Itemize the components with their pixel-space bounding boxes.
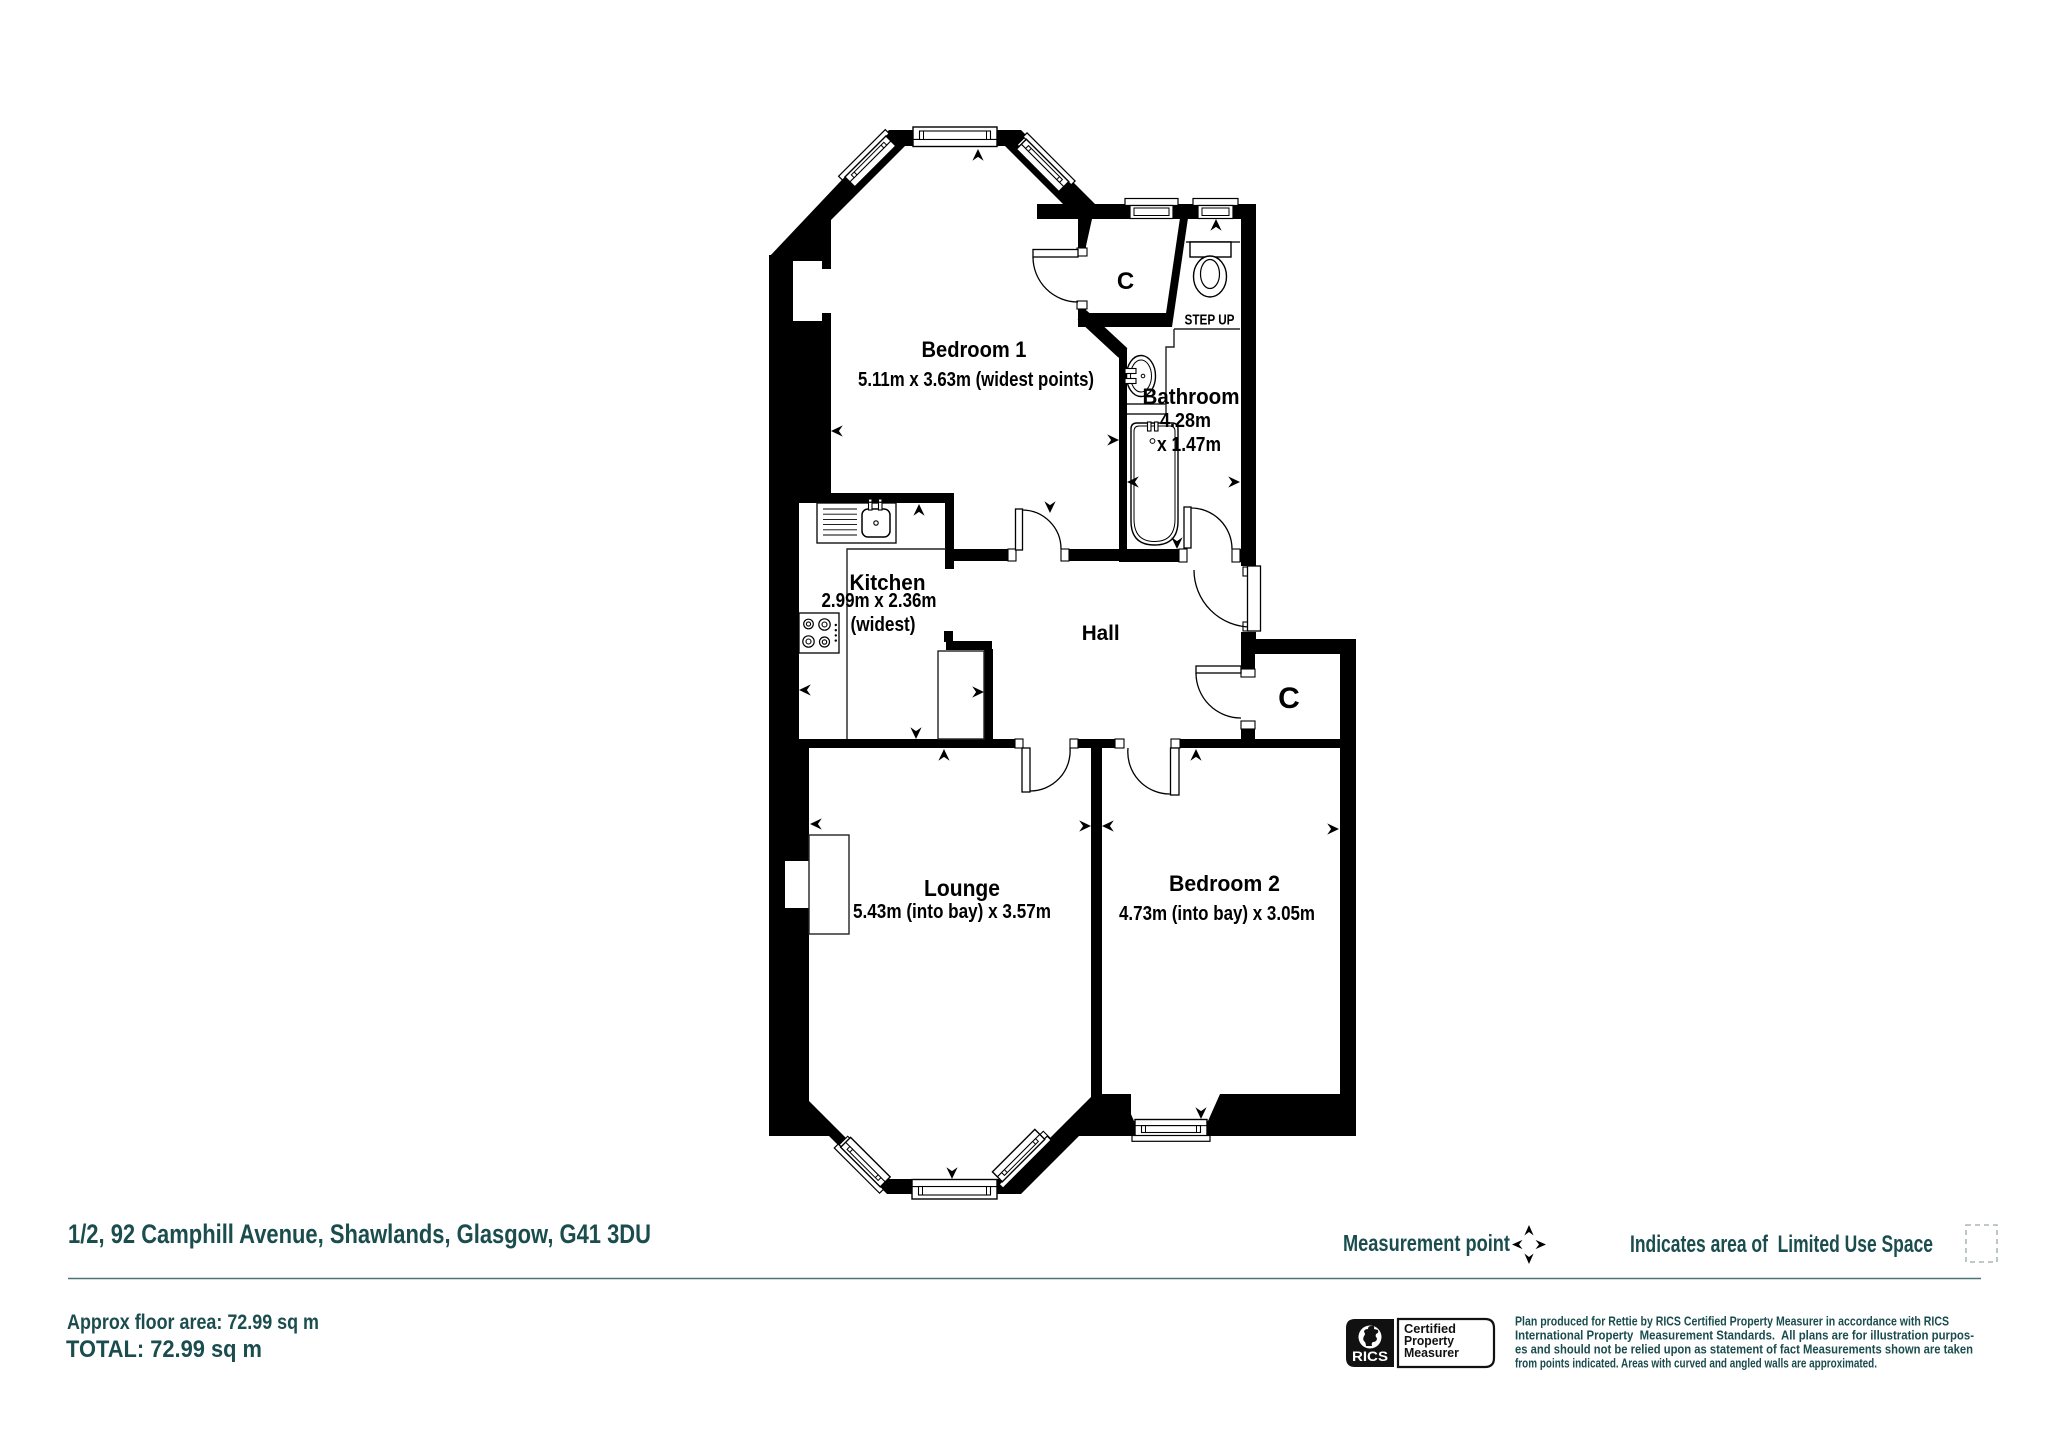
svg-text:Lounge: Lounge — [924, 875, 1000, 901]
svg-text:Plan produced for Rettie by RI: Plan produced for Rettie by RICS Certifi… — [1515, 1314, 1949, 1329]
svg-text:4.28m: 4.28m — [1160, 410, 1211, 432]
svg-text:from points indicated. Areas w: from points indicated. Areas with curved… — [1515, 1356, 1877, 1371]
svg-text:2.99m x 2.36m: 2.99m x 2.36m — [822, 590, 937, 612]
svg-text:Indicates area of Limited Use: Indicates area of Limited Use Space — [1630, 1231, 1933, 1258]
svg-text:Bedroom 2: Bedroom 2 — [1169, 871, 1280, 896]
svg-text:Measurement point: Measurement point — [1343, 1230, 1510, 1256]
svg-text:(widest): (widest) — [851, 614, 916, 636]
svg-text:1/2, 92 Camphill Avenue, Shawl: 1/2, 92 Camphill Avenue, Shawlands, Glas… — [68, 1219, 651, 1249]
svg-text:5.43m (into bay) x 3.57m: 5.43m (into bay) x 3.57m — [853, 901, 1051, 923]
svg-text:es and should not be relied up: es and should not be relied upon as stat… — [1515, 1342, 1973, 1357]
svg-text:Bedroom 1: Bedroom 1 — [922, 337, 1027, 362]
svg-text:RICS: RICS — [1352, 1349, 1388, 1364]
svg-text:TOTAL: 72.99 sq m: TOTAL: 72.99 sq m — [66, 1336, 262, 1363]
svg-text:4.73m (into bay) x 3.05m: 4.73m (into bay) x 3.05m — [1119, 903, 1315, 925]
svg-text:Approx floor area: 72.99 sq m: Approx floor area: 72.99 sq m — [67, 1311, 319, 1334]
svg-text:STEP UP: STEP UP — [1185, 312, 1235, 329]
svg-text:Hall: Hall — [1082, 622, 1120, 645]
svg-text:C: C — [1278, 682, 1300, 715]
svg-text:Bathroom: Bathroom — [1143, 384, 1240, 409]
svg-text:5.11m x 3.63m (widest points): 5.11m x 3.63m (widest points) — [858, 369, 1094, 391]
svg-text:International Property Measur: International Property Measurement Stand… — [1515, 1328, 1974, 1343]
svg-text:x 1.47m: x 1.47m — [1157, 434, 1221, 456]
svg-text:C: C — [1117, 268, 1134, 295]
svg-text:Measurer: Measurer — [1404, 1346, 1459, 1360]
